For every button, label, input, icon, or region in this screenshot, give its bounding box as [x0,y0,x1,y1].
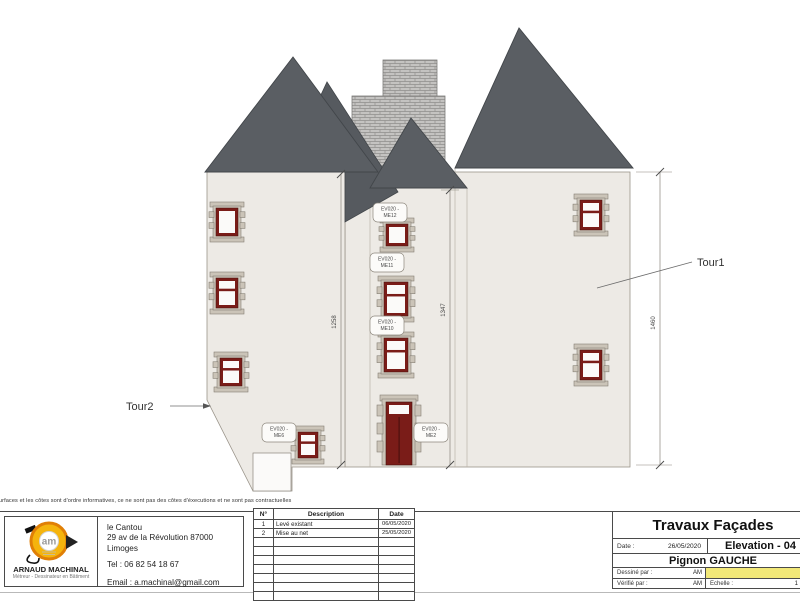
roof-cone-right [455,28,633,168]
tag-text: ME12 [383,213,396,219]
revision-header-desc: Description [274,509,379,520]
revision-date: 06/05/2020 [379,520,415,529]
highlight-cell [705,568,800,578]
tag-text: ME6 [274,433,285,439]
title-block-row-date: Date : 26/05/2020 Elevation - 04 [613,539,800,554]
checked-by-value: AM [669,579,705,589]
revision-row-empty [254,538,415,547]
window [209,272,245,314]
scale-value: 1 : 100 [770,579,800,589]
tag-text: EV020 - [270,427,288,433]
tag-text: ME11 [381,263,394,269]
drawn-by-value: AM [669,568,705,578]
company-info-box: am ARNAUD MACHINAL Métreur - Dessinateur… [4,516,244,587]
window [377,332,415,378]
date-label: Date : [613,539,649,553]
tour2-label: Tour2 [126,401,154,413]
revision-row-empty [254,592,415,601]
company-phone: Tel : 06 82 54 18 67 [107,560,243,570]
window [213,352,249,392]
revision-header-row: N° Description Date [254,509,415,520]
dim-text: 1258 [332,315,338,329]
base-step [253,453,291,491]
revision-date: 25/05/2020 [379,529,415,538]
company-address-column: le Cantou 29 av de la Révolution 87000 L… [97,517,243,586]
dim-text: 1347 [441,303,447,317]
elevation-drawing: EV020 - ME12 EV020 - ME11 EV020 - ME10 E… [0,0,800,505]
project-title: Travaux Façades [613,512,800,539]
revision-num: 2 [254,529,274,538]
drawing-sheet: { "disclaimer": "surfaces et les côtes s… [0,0,800,600]
title-block: Travaux Façades Date : 26/05/2020 Elevat… [612,511,800,589]
window [573,344,609,386]
tag-text: EV020 - [378,257,396,263]
window-tag-me11: EV020 - ME11 [370,253,404,272]
window-tag-me10: EV020 - ME10 [370,316,404,335]
company-logo-column: am ARNAUD MACHINAL Métreur - Dessinateur… [5,517,97,586]
tag-text: EV020 - [378,320,396,326]
company-address-line1: le Cantou [107,523,243,533]
tape-measure-logo-icon: am [22,520,80,564]
window [573,194,609,236]
tag-text: ME10 [380,326,393,332]
scale-label: Echelle : [705,579,770,589]
revision-row-empty [254,547,415,556]
company-address-line2: 29 av de la Révolution 87000 Limoges [107,533,243,554]
window [379,218,415,252]
revision-row: 1 Levé existant 06/05/2020 [254,520,415,529]
revision-header-num: N° [254,509,274,520]
sheet-name: Pignon GAUCHE [613,554,800,568]
sheet-ref: Elevation - 04 [707,539,800,553]
drawn-by-label: Dessiné par : [613,568,669,578]
revision-desc: Mise au net [274,529,379,538]
logo-monogram: am [42,537,57,548]
revision-desc: Levé existant [274,520,379,529]
company-name: ARNAUD MACHINAL [13,565,89,574]
window-tag-me2: EV020 - ME2 [414,423,448,442]
chimney-stack-upper [383,60,437,98]
revision-row-empty [254,565,415,574]
window-tag-me6: EV020 - ME6 [262,423,296,442]
tag-text: ME2 [426,433,437,439]
company-email: Email : a.machinal@gmail.com [107,578,243,588]
date-value: 26/05/2020 [649,539,707,553]
dim-text: 1460 [651,316,657,330]
revision-row-empty [254,574,415,583]
revision-row-empty [254,556,415,565]
title-block-row-checked: Vérifié par : AM Echelle : 1 : 100 [613,579,800,589]
checked-by-label: Vérifié par : [613,579,669,589]
leader-tour2: Tour2 [126,401,211,413]
window [209,202,245,242]
revision-row-empty [254,583,415,592]
title-block-row-drawn: Dessiné par : AM [613,568,800,579]
window-tag-me12: EV020 - ME12 [373,203,407,222]
revision-header-date: Date [379,509,415,520]
revision-table: N° Description Date 1 Levé existant 06/0… [253,508,415,601]
tag-text: EV020 - [381,207,399,213]
dimension-right-tower: 1460 [636,168,672,469]
tag-text: EV020 - [422,427,440,433]
revision-num: 1 [254,520,274,529]
revision-row: 2 Mise au net 25/05/2020 [254,529,415,538]
company-tagline: Métreur - Dessinateur en Bâtiment [13,574,89,580]
tour1-label: Tour1 [697,257,725,269]
disclaimer-text: surfaces et les côtes sont d'ordre infor… [0,498,291,504]
window [377,276,415,322]
